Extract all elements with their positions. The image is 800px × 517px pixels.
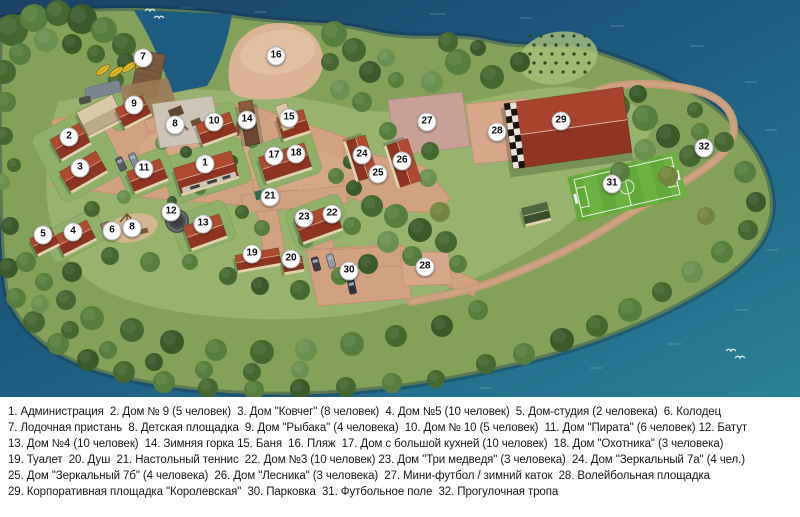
aerial-map: 1234567889101112131415161718192021222324… (0, 0, 800, 397)
legend-line: 25. Дом "Зеркальный 7б" (4 человека) 26.… (8, 468, 796, 484)
legend-line: 13. Дом №4 (10 человек) 14. Зимняя горка… (8, 436, 796, 452)
map-scene (0, 0, 800, 397)
legend-line: 7. Лодочная пристань 8. Детская площадка… (8, 420, 796, 436)
legend-line: 19. Туалет 20. Душ 21. Настольный теннис… (8, 452, 796, 468)
legend-line: 29. Корпоративная площадка "Королевская"… (8, 484, 796, 500)
legend-line: 1. Администрация 2. Дом № 9 (5 человек) … (8, 404, 796, 420)
legend: 1. Администрация 2. Дом № 9 (5 человек) … (0, 397, 800, 517)
camp-map-page: 1234567889101112131415161718192021222324… (0, 0, 800, 517)
legend-lines: 1. Администрация 2. Дом № 9 (5 человек) … (8, 404, 796, 500)
